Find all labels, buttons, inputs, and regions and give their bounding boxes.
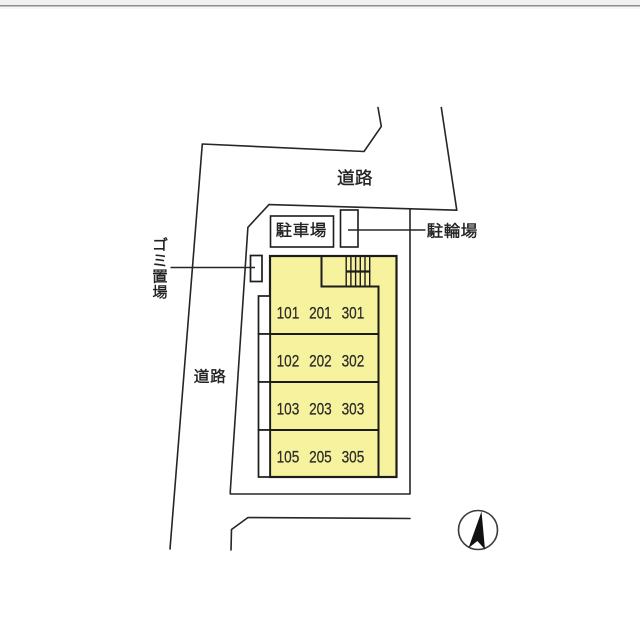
svg-text:102: 102 bbox=[277, 352, 300, 371]
svg-text:201: 201 bbox=[309, 304, 332, 323]
svg-text:101: 101 bbox=[277, 304, 300, 323]
svg-text:203: 203 bbox=[309, 400, 332, 419]
svg-text:301: 301 bbox=[342, 304, 365, 323]
svg-text:105: 105 bbox=[277, 448, 300, 467]
svg-text:202: 202 bbox=[309, 352, 332, 371]
svg-text:302: 302 bbox=[342, 352, 365, 371]
svg-text:303: 303 bbox=[342, 400, 365, 419]
svg-text:305: 305 bbox=[342, 448, 365, 467]
svg-text:205: 205 bbox=[309, 448, 332, 467]
svg-text:103: 103 bbox=[277, 400, 300, 419]
